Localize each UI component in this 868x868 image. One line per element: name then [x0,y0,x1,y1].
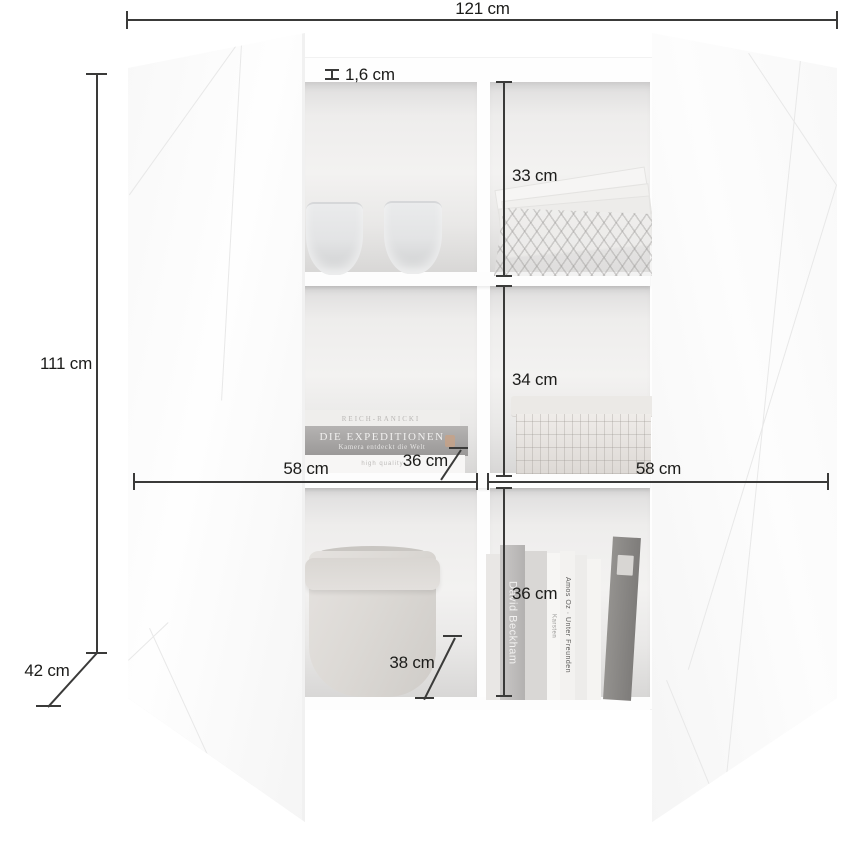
dim-line-total-width [127,19,838,21]
dim-label-top-height: 33 cm [512,167,557,185]
dim-tick [36,705,61,707]
dim-line-total-height [96,74,98,654]
dim-tick [496,81,512,83]
dim-label-total-width: 121 cm [127,0,838,18]
dim-label-shelf-depth: 36 cm [398,452,448,470]
dim-tick [496,285,512,287]
dim-tick [496,695,512,697]
dim-tick [86,73,107,75]
dim-label-middle-height: 34 cm [512,371,557,389]
dim-line-middle-height [503,286,505,477]
dim-tick [496,487,512,489]
dim-label-bottom-height: 36 cm [512,585,557,603]
dim-tick [496,275,512,277]
dimension-annotations: 121 cm 111 cm 42 cm 1,6 cm 33 cm 34 cm 3… [0,0,868,868]
dim-label-total-depth: 42 cm [24,662,70,680]
product-dimension-diagram: REICH-RANICKI DIE EXPEDITIONEN Kamera en… [0,0,868,868]
dim-label-total-height: 111 cm [40,355,90,373]
dim-line-left-width [134,481,478,483]
dim-line-top-height [503,82,505,277]
dim-label-right-width: 58 cm [488,460,829,478]
dim-tick [443,635,462,637]
dim-line-bottom-height [503,488,505,697]
dim-tick [415,697,434,699]
thickness-icon [325,69,339,81]
dim-tick [449,447,468,449]
dim-label-bottom-depth: 38 cm [389,654,435,672]
dim-label-panel-thickness: 1,6 cm [345,66,395,84]
dim-line-right-width [488,481,829,483]
